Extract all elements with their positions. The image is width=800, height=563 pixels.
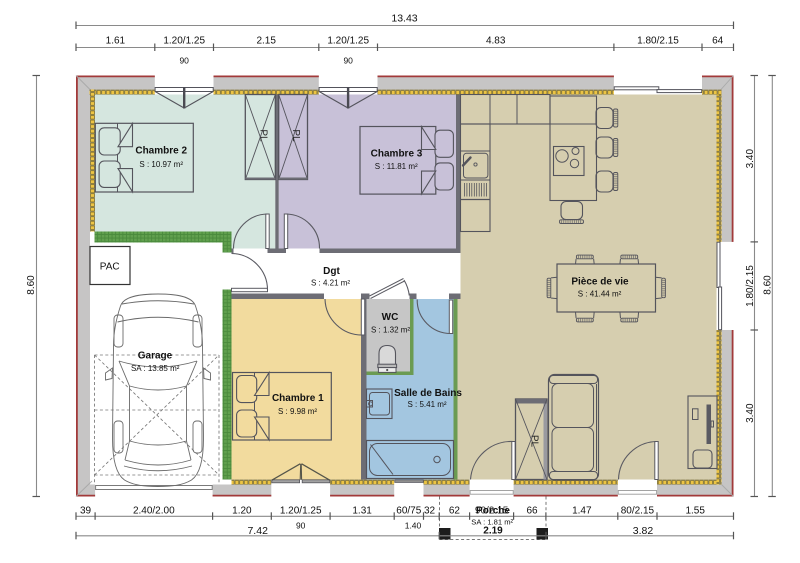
svg-text:S : 9.98 m²: S : 9.98 m² <box>278 407 317 416</box>
svg-text:S : 1.32 m²: S : 1.32 m² <box>371 326 410 335</box>
svg-text:S : 11.81 m²: S : 11.81 m² <box>375 162 418 171</box>
svg-text:Dgt: Dgt <box>323 266 340 277</box>
svg-text:3.82: 3.82 <box>633 525 654 537</box>
svg-text:1.20: 1.20 <box>232 506 252 517</box>
svg-text:1.55: 1.55 <box>685 506 705 517</box>
svg-text:2.40/2.00: 2.40/2.00 <box>133 506 175 517</box>
svg-text:PL: PL <box>528 435 539 448</box>
svg-text:Salle de Bains: Salle de Bains <box>394 388 462 399</box>
svg-text:90: 90 <box>179 56 189 66</box>
svg-text:32: 32 <box>424 506 436 517</box>
svg-text:13.43: 13.43 <box>391 13 417 25</box>
svg-text:39: 39 <box>80 506 92 517</box>
svg-text:WC: WC <box>382 312 399 323</box>
svg-text:8.60: 8.60 <box>26 275 37 295</box>
svg-text:PAC: PAC <box>100 261 120 272</box>
svg-text:8.60: 8.60 <box>763 275 774 295</box>
svg-text:1.20/1.25: 1.20/1.25 <box>280 506 322 517</box>
svg-text:1.20/1.25: 1.20/1.25 <box>327 36 369 47</box>
svg-text:2.19: 2.19 <box>483 526 503 537</box>
svg-text:90: 90 <box>296 521 306 531</box>
svg-text:S : 10.97 m²: S : 10.97 m² <box>139 160 183 169</box>
svg-text:Garage: Garage <box>138 351 173 362</box>
svg-text:1.40: 1.40 <box>405 521 422 531</box>
svg-text:SA : 13.85 m²: SA : 13.85 m² <box>131 364 180 373</box>
svg-text:S : 4.21 m²: S : 4.21 m² <box>311 279 350 288</box>
svg-text:3.40: 3.40 <box>745 403 756 423</box>
svg-text:4.83: 4.83 <box>486 36 506 47</box>
svg-text:60/75: 60/75 <box>396 506 421 517</box>
svg-text:1.20/1.25: 1.20/1.25 <box>163 36 205 47</box>
svg-text:80/2.15: 80/2.15 <box>621 506 655 517</box>
svg-text:1.80/2.15: 1.80/2.15 <box>637 36 679 47</box>
svg-text:1.47: 1.47 <box>572 506 592 517</box>
svg-text:Chambre 3: Chambre 3 <box>371 149 423 160</box>
svg-text:Chambre 2: Chambre 2 <box>135 146 187 157</box>
svg-text:7.42: 7.42 <box>247 525 268 537</box>
svg-text:PL: PL <box>257 129 268 142</box>
svg-text:1.31: 1.31 <box>352 506 372 517</box>
svg-text:3.40: 3.40 <box>745 149 756 169</box>
svg-text:64: 64 <box>712 36 724 47</box>
svg-text:66: 66 <box>526 506 538 517</box>
svg-text:Chambre 1: Chambre 1 <box>272 393 324 404</box>
svg-text:90: 90 <box>343 56 353 66</box>
svg-text:2.15: 2.15 <box>256 36 276 47</box>
svg-text:62: 62 <box>449 506 461 517</box>
svg-text:1.61: 1.61 <box>106 36 126 47</box>
svg-text:S : 5.41 m²: S : 5.41 m² <box>407 400 446 409</box>
svg-text:Porche: Porche <box>476 506 510 517</box>
svg-text:S : 41.44 m²: S : 41.44 m² <box>578 290 622 299</box>
svg-text:Pièce de vie: Pièce de vie <box>571 276 629 287</box>
svg-text:PL: PL <box>290 129 301 142</box>
svg-text:1.80/2.15: 1.80/2.15 <box>745 265 756 307</box>
